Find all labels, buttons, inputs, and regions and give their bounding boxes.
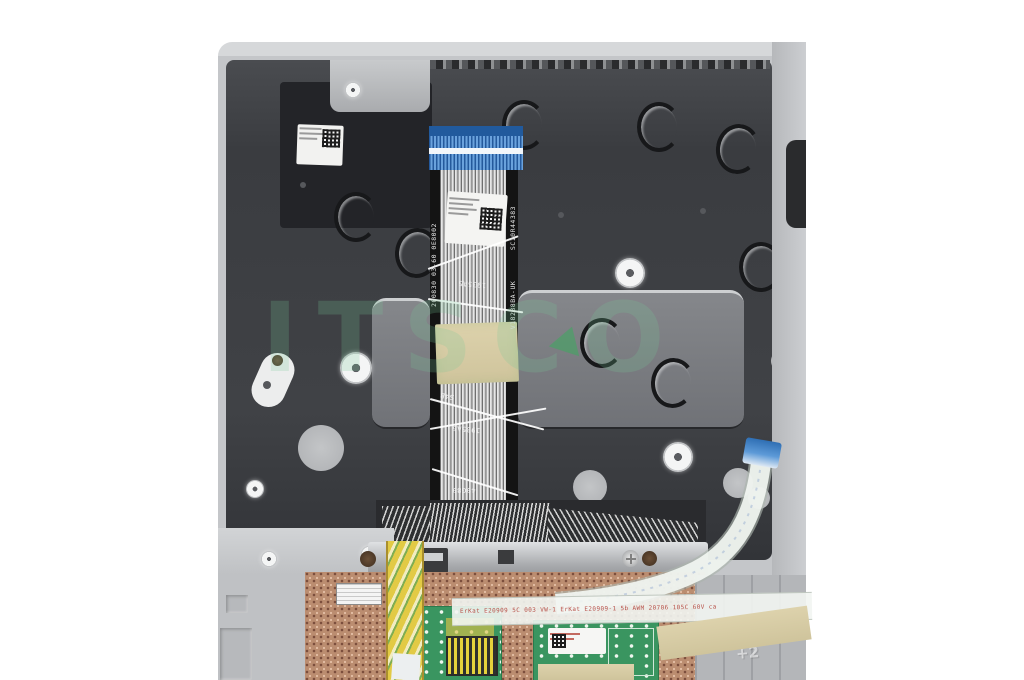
hook-cutout xyxy=(334,192,378,242)
cable-connector-top-bar xyxy=(429,126,523,136)
label-text-line xyxy=(449,202,473,206)
zif-connector xyxy=(446,636,498,676)
label-text-line xyxy=(299,137,317,140)
plate-circle xyxy=(573,470,607,504)
plate-circle xyxy=(298,425,344,471)
cable-print-code: 49G89 xyxy=(452,486,476,494)
label-text-line xyxy=(449,207,477,211)
hook-cutout xyxy=(637,102,681,152)
cable-label xyxy=(444,191,507,247)
screw-standoff xyxy=(261,551,277,567)
cable-side-code-right-bottom: V18288BA-UK xyxy=(508,225,518,385)
pcb-label xyxy=(548,628,606,654)
screw-hole xyxy=(345,82,361,98)
copper-bracket-slot xyxy=(336,583,382,605)
cable-connector-blue xyxy=(429,136,523,148)
kapton-tape xyxy=(435,322,519,385)
emboss-recess xyxy=(226,595,248,613)
keyboard-plate-hook-row xyxy=(420,60,770,69)
cable-side-code-left: 200830 03-60 0E8002 xyxy=(429,185,439,345)
screw-standoff xyxy=(246,480,264,498)
screw xyxy=(642,551,657,566)
screw xyxy=(360,551,376,567)
plate-dimple xyxy=(558,212,564,218)
label-text-line xyxy=(448,212,468,215)
screw-hole xyxy=(263,381,271,389)
qr-code xyxy=(479,207,502,230)
adhesive-tape xyxy=(538,664,634,680)
plate-label xyxy=(296,124,343,166)
hook-cutout xyxy=(580,318,624,368)
qr-code xyxy=(552,634,566,648)
screw xyxy=(272,355,283,366)
yellow-flex-tip xyxy=(391,653,421,680)
screw-standoff xyxy=(615,258,645,288)
screw-standoff xyxy=(663,442,693,472)
plate-dimple xyxy=(300,182,306,188)
plate-panel-right xyxy=(518,290,744,429)
dark-component-right-edge xyxy=(786,140,806,228)
screw xyxy=(622,550,639,567)
label-text-line xyxy=(449,197,479,201)
screw-standoff xyxy=(340,352,372,384)
product-photo-laptop-palmrest: 1935A5 S4B 1935A5 49G89 200830 03-60 0E8… xyxy=(0,0,1024,680)
plate-panel-left xyxy=(372,298,430,429)
plate-circle xyxy=(748,487,770,509)
plate-dimple xyxy=(700,208,706,214)
emboss-recess xyxy=(220,628,252,680)
label-text-line xyxy=(300,127,322,130)
qr-code xyxy=(322,129,341,148)
bracket-slot xyxy=(498,550,514,564)
